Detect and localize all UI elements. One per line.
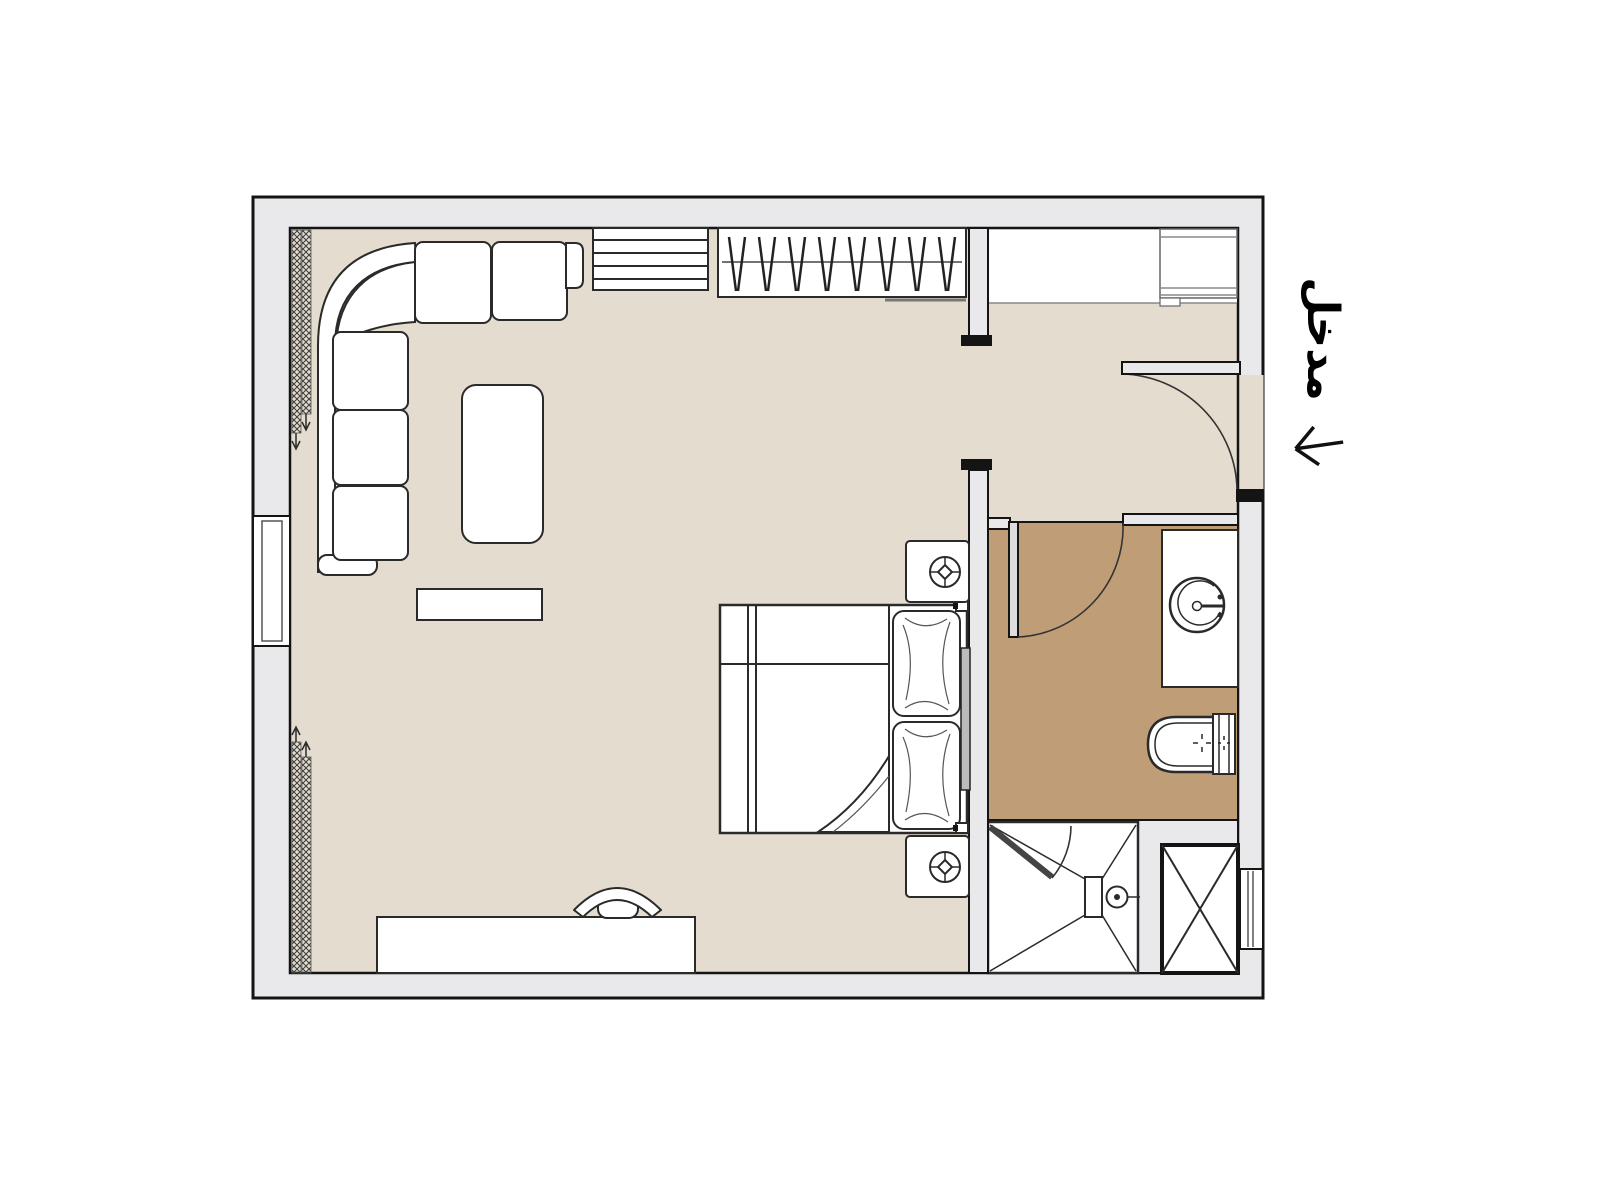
shower-drain [1085, 877, 1102, 917]
closet-divider-wall [969, 228, 988, 336]
bathroom-partition-wall [969, 470, 988, 973]
pillow [893, 611, 960, 716]
entrance-arrow-icon [1293, 423, 1346, 467]
nightstand-with-lamp [906, 836, 969, 897]
shelf-unit [593, 228, 708, 290]
floor-plan-canvas: مدخل [0, 0, 1600, 1200]
floor-plan-page: مدخل [0, 0, 1600, 1200]
entry-closet-area [989, 229, 1237, 306]
coffee-table [462, 385, 543, 543]
entry-cabinet [1160, 229, 1237, 306]
right-window [1240, 869, 1263, 949]
vanity-with-sink [1162, 530, 1238, 687]
sofa-armrest [566, 243, 583, 288]
nightstand-with-lamp [906, 541, 969, 602]
pillow [893, 722, 960, 829]
shower-tray [988, 822, 1140, 973]
double-bed [720, 601, 970, 833]
service-shaft [1162, 845, 1238, 973]
shower-corner [988, 820, 1238, 973]
media-console [417, 589, 542, 620]
headboard [961, 648, 970, 790]
closet-with-hangers [718, 228, 966, 300]
left-window [253, 516, 290, 646]
desk [377, 917, 695, 973]
entrance-label: مدخل [1297, 277, 1348, 401]
toilet [1148, 714, 1235, 774]
